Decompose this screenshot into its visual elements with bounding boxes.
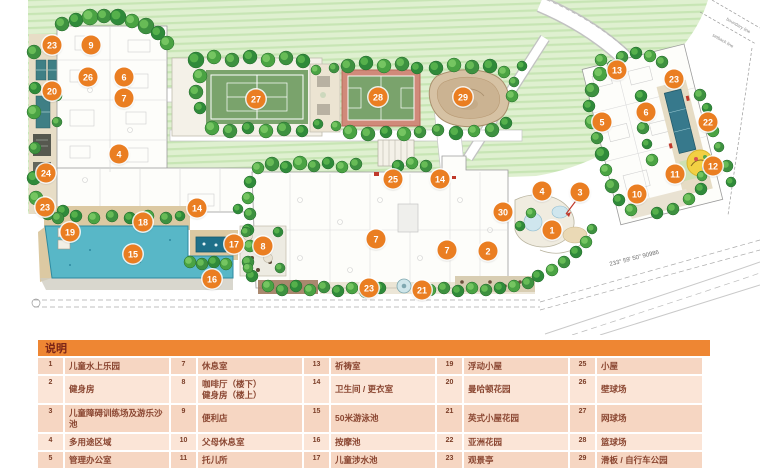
tree-icon: [88, 212, 100, 224]
tree-icon: [241, 227, 251, 237]
tree-icon: [52, 91, 62, 101]
tree-icon: [361, 127, 375, 141]
tree-icon: [420, 160, 432, 172]
tree-icon: [593, 67, 607, 81]
tree-icon: [189, 85, 203, 99]
tree-icon: [265, 157, 279, 171]
legend-item-number: 21: [437, 405, 462, 432]
tree-icon: [526, 208, 536, 218]
tree-icon: [280, 161, 292, 173]
tree-icon: [432, 124, 444, 136]
tree-icon: [318, 281, 330, 293]
legend-item-number: 25: [570, 358, 595, 374]
tree-icon: [605, 179, 619, 193]
legend-item-number: 1: [38, 358, 63, 374]
legend-title: 说明: [38, 340, 710, 356]
tree-icon: [580, 236, 592, 248]
legend-item-number: 17: [304, 452, 329, 468]
tree-icon: [208, 256, 220, 268]
tree-icon: [313, 119, 323, 129]
tree-icon: [69, 13, 83, 27]
legend-item-label: 卫生间 / 更衣室: [331, 376, 435, 403]
tree-icon: [308, 160, 320, 172]
tree-icon: [466, 282, 478, 294]
site-plan-drawing: boundary line setback line 233° 59' 50" …: [0, 0, 760, 335]
tree-icon: [642, 139, 652, 149]
tree-icon: [242, 122, 254, 134]
tree-icon: [591, 132, 603, 144]
tree-icon: [124, 212, 136, 224]
tree-icon: [225, 53, 239, 67]
tree-icon: [279, 51, 293, 65]
tree-icon: [585, 115, 599, 129]
tree-icon: [184, 256, 196, 268]
tree-icon: [244, 240, 256, 252]
legend-item-number: 2: [38, 376, 63, 403]
tree-icon: [243, 50, 257, 64]
tree-icon: [697, 171, 707, 181]
tree-icon: [595, 54, 607, 66]
tree-icon: [468, 125, 480, 137]
tree-icon: [585, 83, 599, 97]
tree-icon: [447, 58, 461, 72]
legend-item-label: 浮动小屋: [464, 358, 568, 374]
legend-item-number: 22: [437, 434, 462, 450]
tree-icon: [273, 227, 283, 237]
legend-item-number: 8: [171, 376, 196, 403]
tree-icon: [721, 160, 733, 172]
boundary-label: boundary line: [726, 17, 752, 35]
tree-icon: [29, 191, 43, 205]
tree-icon: [125, 14, 139, 28]
tree-icon: [350, 158, 362, 170]
tree-icon: [616, 51, 628, 63]
legend-item-label: 咖啡厅（楼下） 健身房（楼上）: [198, 376, 302, 403]
tree-icon: [498, 66, 510, 78]
page: boundary line setback line 233° 59' 50" …: [0, 0, 760, 470]
tree-icon: [359, 284, 373, 298]
legend-item-label: 网球场: [597, 405, 702, 432]
legend-item-number: 23: [437, 452, 462, 468]
tree-icon: [27, 171, 41, 185]
tree-icon: [193, 69, 207, 83]
tree-icon: [55, 17, 69, 31]
tree-icon: [558, 256, 570, 268]
tree-icon: [452, 285, 464, 297]
legend-item-number: 4: [38, 434, 63, 450]
tree-icon: [52, 212, 64, 224]
tree-icon: [449, 126, 463, 140]
tree-icon: [411, 62, 423, 74]
tree-icon: [485, 123, 499, 137]
legend-item-number: 29: [570, 452, 595, 468]
tree-icon: [359, 56, 373, 70]
tree-icon: [506, 90, 518, 102]
tree-icon: [304, 284, 316, 296]
legend-item-number: 10: [171, 434, 196, 450]
tree-icon: [656, 56, 668, 68]
legend-item-number: 9: [171, 405, 196, 432]
tree-icon: [233, 204, 243, 214]
tree-icon: [380, 126, 392, 138]
tree-icon: [276, 284, 288, 296]
tree-icon: [296, 54, 310, 68]
legend-item-label: 儿童涉水池: [331, 452, 435, 468]
tree-icon: [142, 210, 154, 222]
legend-item-number: 20: [437, 376, 462, 403]
legend-item-label: 便利店: [198, 405, 302, 432]
tree-icon: [27, 105, 41, 119]
tree-icon: [262, 280, 274, 292]
legend-item-label: 50米游泳池: [331, 405, 435, 432]
tree-icon: [726, 177, 736, 187]
legend-item-label: 儿童水上乐园: [65, 358, 169, 374]
tree-icon: [70, 210, 82, 222]
tree-icon: [515, 221, 525, 231]
tree-icon: [29, 142, 41, 154]
legend-item-label: 小屋: [597, 358, 702, 374]
tree-icon: [651, 207, 663, 219]
legend-item-label: 托儿所: [198, 452, 302, 468]
setback-label: setback line: [712, 33, 736, 49]
tree-icon: [194, 102, 206, 114]
tree-icon: [377, 59, 391, 73]
tree-icon: [29, 82, 41, 94]
legend-item-label: 亚洲花园: [464, 434, 568, 450]
tree-icon: [331, 121, 341, 131]
tree-icon: [465, 60, 479, 74]
tree-icon: [429, 61, 443, 75]
tree-icon: [160, 212, 172, 224]
legend-grid: 1儿童水上乐园7休息室13祈祷室19浮动小屋25小屋2健身房8咖啡厅（楼下） 健…: [38, 358, 710, 470]
legend-item-label: 父母休息室: [198, 434, 302, 450]
floating-cabin: [58, 228, 70, 237]
tree-icon: [522, 277, 534, 289]
tree-icon: [275, 263, 285, 273]
tree-icon: [374, 282, 386, 294]
tree-icon: [223, 124, 237, 138]
tree-icon: [517, 61, 527, 71]
legend-item-number: 5: [38, 452, 63, 468]
tree-icon: [595, 147, 609, 161]
legend-item-number: 3: [38, 405, 63, 432]
tree-icon: [509, 77, 519, 87]
tree-icon: [508, 280, 520, 292]
tree-icon: [583, 100, 595, 112]
legend-item-number: 13: [304, 358, 329, 374]
tree-icon: [329, 63, 339, 73]
kids-water-park: [515, 195, 590, 253]
legend-table: 说明 1儿童水上乐园7休息室13祈祷室19浮动小屋25小屋2健身房8咖啡厅（楼下…: [38, 340, 710, 470]
tree-icon: [644, 50, 656, 62]
legend-item-label: 壁球场: [597, 376, 702, 403]
tree-icon: [332, 285, 344, 297]
legend-item-number: 15: [304, 405, 329, 432]
legend-item-label: 滑板 / 自行车公园: [597, 452, 702, 468]
tree-icon: [546, 264, 558, 276]
wading-pool: [196, 237, 226, 252]
tree-icon: [695, 183, 707, 195]
tree-icon: [296, 125, 308, 137]
tree-icon: [635, 90, 647, 102]
tree-icon: [261, 53, 275, 67]
tree-icon: [205, 121, 219, 135]
tree-icon: [637, 122, 649, 134]
legend-item-label: 多用途区域: [65, 434, 169, 450]
tree-icon: [483, 59, 497, 73]
tree-icon: [639, 107, 649, 117]
tree-icon: [343, 125, 357, 139]
tree-icon: [395, 57, 409, 71]
legend-item-label: 篮球场: [597, 434, 702, 450]
legend-item-label: 英式小屋花园: [464, 405, 568, 432]
legend-item-label: 观景亭: [464, 452, 568, 468]
tree-icon: [106, 210, 118, 222]
tree-icon: [188, 52, 204, 68]
tree-icon: [613, 194, 625, 206]
tree-icon: [414, 126, 426, 138]
legend-item-label: 儿童障碍训练场及游乐沙池: [65, 405, 169, 432]
tree-icon: [207, 50, 221, 64]
tree-icon: [494, 282, 506, 294]
legend-item-label: 休息室: [198, 358, 302, 374]
tree-icon: [600, 164, 612, 176]
tree-icon: [160, 36, 174, 50]
tree-icon: [175, 211, 185, 221]
tree-icon: [625, 204, 637, 216]
tree-icon: [244, 208, 256, 220]
tree-icon: [97, 9, 111, 23]
tree-icon: [277, 122, 291, 136]
tree-icon: [702, 103, 712, 113]
legend-item-label: 祈祷室: [331, 358, 435, 374]
tree-icon: [244, 176, 256, 188]
tree-icon: [322, 157, 334, 169]
tree-icon: [480, 284, 492, 296]
tree-icon: [290, 280, 302, 292]
tree-icon: [336, 161, 348, 173]
tree-icon: [406, 157, 418, 169]
tree-icon: [196, 258, 208, 270]
tree-icon: [52, 117, 62, 127]
legend-item-number: 11: [171, 452, 196, 468]
tree-icon: [532, 270, 544, 282]
tree-icon: [220, 258, 232, 270]
legend-item-number: 7: [171, 358, 196, 374]
tree-icon: [646, 154, 658, 166]
tree-icon: [27, 45, 41, 59]
tree-icon: [694, 89, 706, 101]
bearing-annotation: 233° 59' 50" 90986: [609, 250, 660, 268]
tree-icon: [683, 193, 695, 205]
legend-item-label: 管理办公室: [65, 452, 169, 468]
tree-icon: [346, 282, 358, 294]
tree-icon: [707, 125, 719, 137]
tree-icon: [500, 117, 512, 129]
legend-item-number: 14: [304, 376, 329, 403]
legend-item-number: 26: [570, 376, 595, 403]
tree-icon: [341, 59, 355, 73]
legend-item-label: 按摩池: [331, 434, 435, 450]
tree-icon: [630, 47, 642, 59]
legend-item-number: 28: [570, 434, 595, 450]
tree-icon: [82, 9, 98, 25]
legend-item-number: 16: [304, 434, 329, 450]
tree-icon: [438, 282, 450, 294]
tree-icon: [607, 60, 619, 72]
tree-icon: [714, 142, 724, 152]
legend-item-label: 曼哈顿花园: [464, 376, 568, 403]
tree-icon: [259, 124, 273, 138]
tree-icon: [293, 156, 307, 170]
tree-icon: [110, 9, 126, 25]
legend-item-label: 健身房: [65, 376, 169, 403]
tree-icon: [242, 192, 254, 204]
tree-icon: [243, 263, 253, 273]
site-plan-map: boundary line setback line 233° 59' 50" …: [0, 0, 760, 335]
tree-icon: [667, 203, 679, 215]
legend-item-number: 19: [437, 358, 462, 374]
legend-item-number: 27: [570, 405, 595, 432]
tree-icon: [587, 224, 597, 234]
tree-icon: [392, 160, 404, 172]
tree-icon: [570, 246, 582, 258]
tree-icon: [311, 65, 321, 75]
tree-icon: [397, 127, 411, 141]
tree-icon: [252, 162, 264, 174]
tree-icon: [424, 284, 436, 296]
